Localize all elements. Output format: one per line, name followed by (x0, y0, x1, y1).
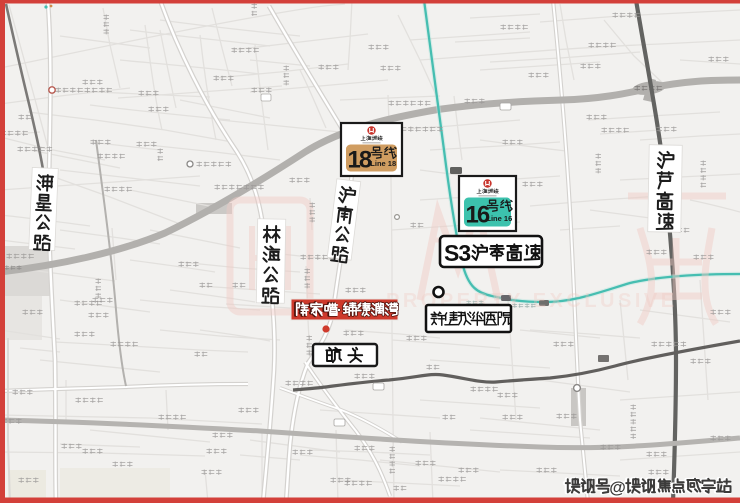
svg-text:@: @ (609, 478, 626, 497)
svg-text:Line 18: Line 18 (370, 159, 396, 168)
svg-text:18: 18 (348, 147, 372, 174)
svg-text:Line 16: Line 16 (486, 214, 512, 223)
svg-text:S3: S3 (444, 240, 470, 266)
